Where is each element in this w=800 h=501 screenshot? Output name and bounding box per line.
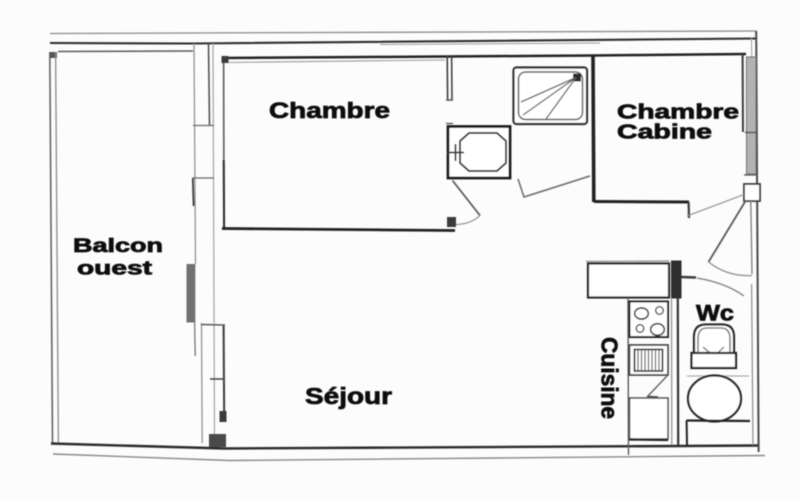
svg-text:Chambre: Chambre [617, 102, 739, 124]
svg-text:Séjour: Séjour [305, 383, 392, 409]
svg-text:Balcon: Balcon [73, 236, 163, 257]
svg-text:Cabine: Cabine [617, 122, 712, 144]
svg-text:ouest: ouest [77, 259, 153, 280]
svg-text:Chambre: Chambre [269, 98, 390, 123]
svg-text:Cuisine: Cuisine [597, 337, 623, 419]
svg-text:Wc: Wc [696, 301, 734, 326]
